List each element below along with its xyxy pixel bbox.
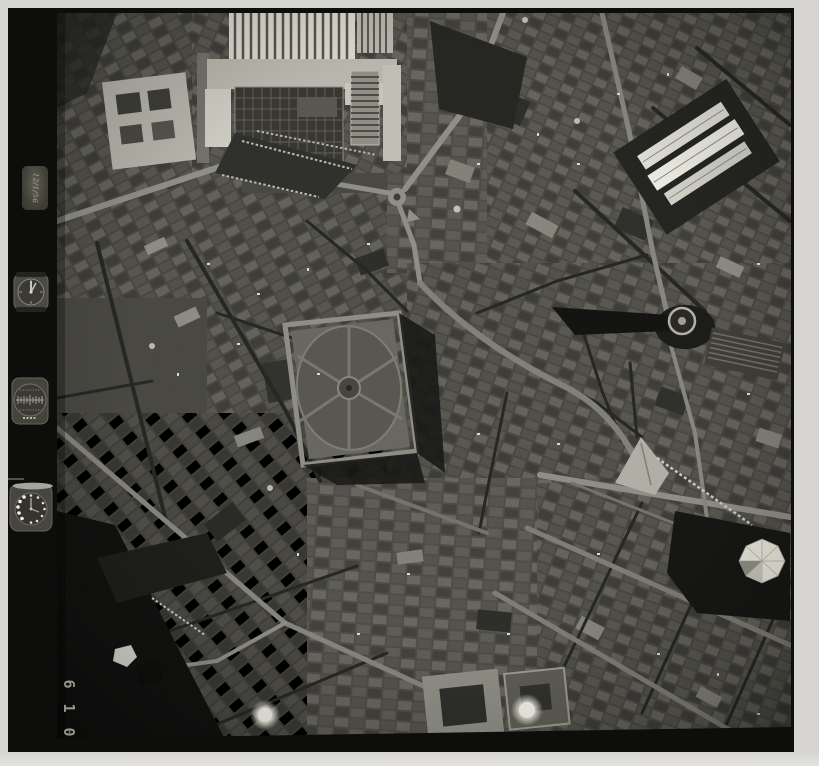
aerial-photo bbox=[57, 13, 791, 747]
film-grain bbox=[57, 13, 791, 747]
data-plate-text: 12/1/56 bbox=[30, 173, 39, 204]
data-plate: 12/1/56 bbox=[22, 166, 48, 210]
film-frame: 12/1/56 bbox=[8, 8, 794, 753]
frame-number-digit: 0 bbox=[59, 721, 79, 743]
frame-number-digit: 1 bbox=[59, 697, 79, 719]
clock-dial-icon bbox=[13, 271, 49, 313]
altimeter-dial-icon bbox=[11, 376, 49, 426]
watch-dial-icon bbox=[9, 481, 53, 533]
frame-number-digit: 6 bbox=[59, 673, 79, 695]
frame-number: 6 1 0 bbox=[58, 674, 80, 742]
photo-paper-background: Black-and-white vertical aerial photogra… bbox=[0, 0, 819, 766]
film-scratch bbox=[8, 478, 24, 480]
